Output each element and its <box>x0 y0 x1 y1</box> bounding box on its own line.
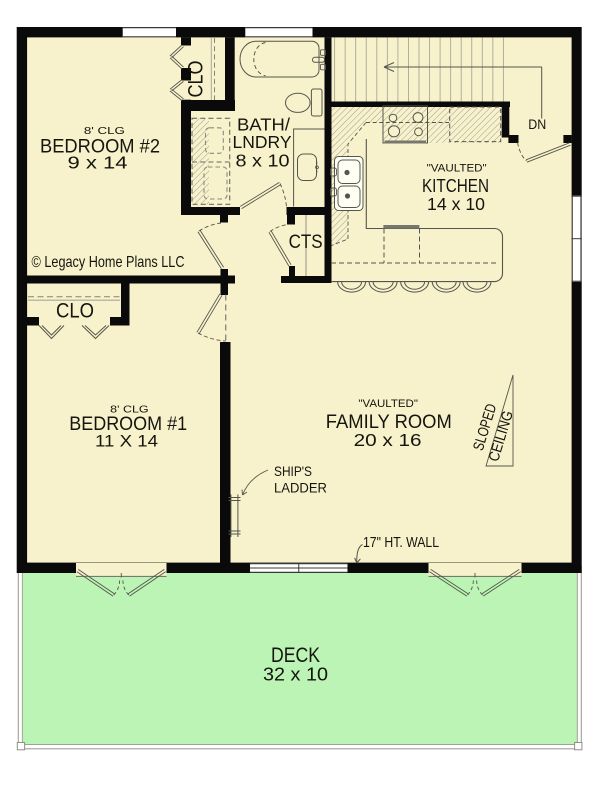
svg-text:"VAULTED": "VAULTED" <box>358 398 418 410</box>
svg-text:20 x 16: 20 x 16 <box>354 430 422 450</box>
svg-text:"VAULTED": "VAULTED" <box>427 162 487 174</box>
svg-text:11 X 14: 11 X 14 <box>95 432 158 450</box>
svg-text:LADDER: LADDER <box>274 480 327 496</box>
svg-text:LNDRY: LNDRY <box>233 132 292 152</box>
svg-text:CTS: CTS <box>289 231 323 253</box>
svg-text:14 x 10: 14 x 10 <box>427 194 485 214</box>
svg-text:CLO: CLO <box>56 300 94 323</box>
svg-text:© Legacy Home Plans LLC: © Legacy Home Plans LLC <box>32 254 185 271</box>
svg-text:DN: DN <box>528 117 546 132</box>
svg-text:9 x 14: 9 x 14 <box>68 153 128 173</box>
svg-text:KITCHEN: KITCHEN <box>422 175 489 196</box>
svg-text:32 x 10: 32 x 10 <box>263 665 328 685</box>
svg-text:8 x 10: 8 x 10 <box>236 151 290 171</box>
svg-text:SHIP'S: SHIP'S <box>274 463 312 479</box>
svg-text:17" HT. WALL: 17" HT. WALL <box>363 535 439 551</box>
svg-text:CLO: CLO <box>185 61 208 98</box>
